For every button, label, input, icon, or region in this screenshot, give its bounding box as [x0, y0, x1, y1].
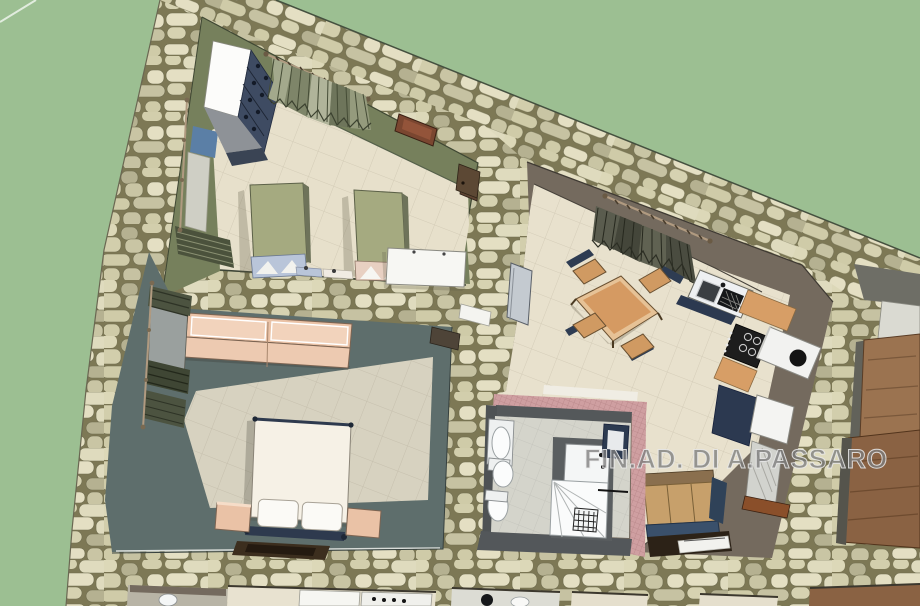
- svg-text:FIN.AD. DI A.PASSARO: FIN.AD. DI A.PASSARO: [584, 444, 888, 474]
